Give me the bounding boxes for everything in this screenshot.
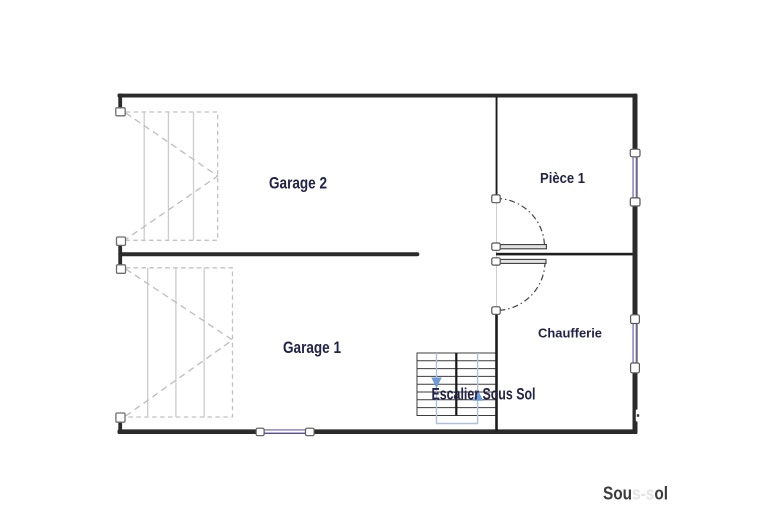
svg-text:Sous-sol: Sous-sol xyxy=(603,484,668,504)
svg-text:Escalier Sous Sol: Escalier Sous Sol xyxy=(432,385,536,404)
svg-text:Garage 1: Garage 1 xyxy=(283,338,341,357)
svg-text:Chaufferie: Chaufferie xyxy=(538,325,602,340)
svg-text:Garage 2: Garage 2 xyxy=(269,174,327,193)
svg-text:Pièce 1: Pièce 1 xyxy=(540,171,585,187)
